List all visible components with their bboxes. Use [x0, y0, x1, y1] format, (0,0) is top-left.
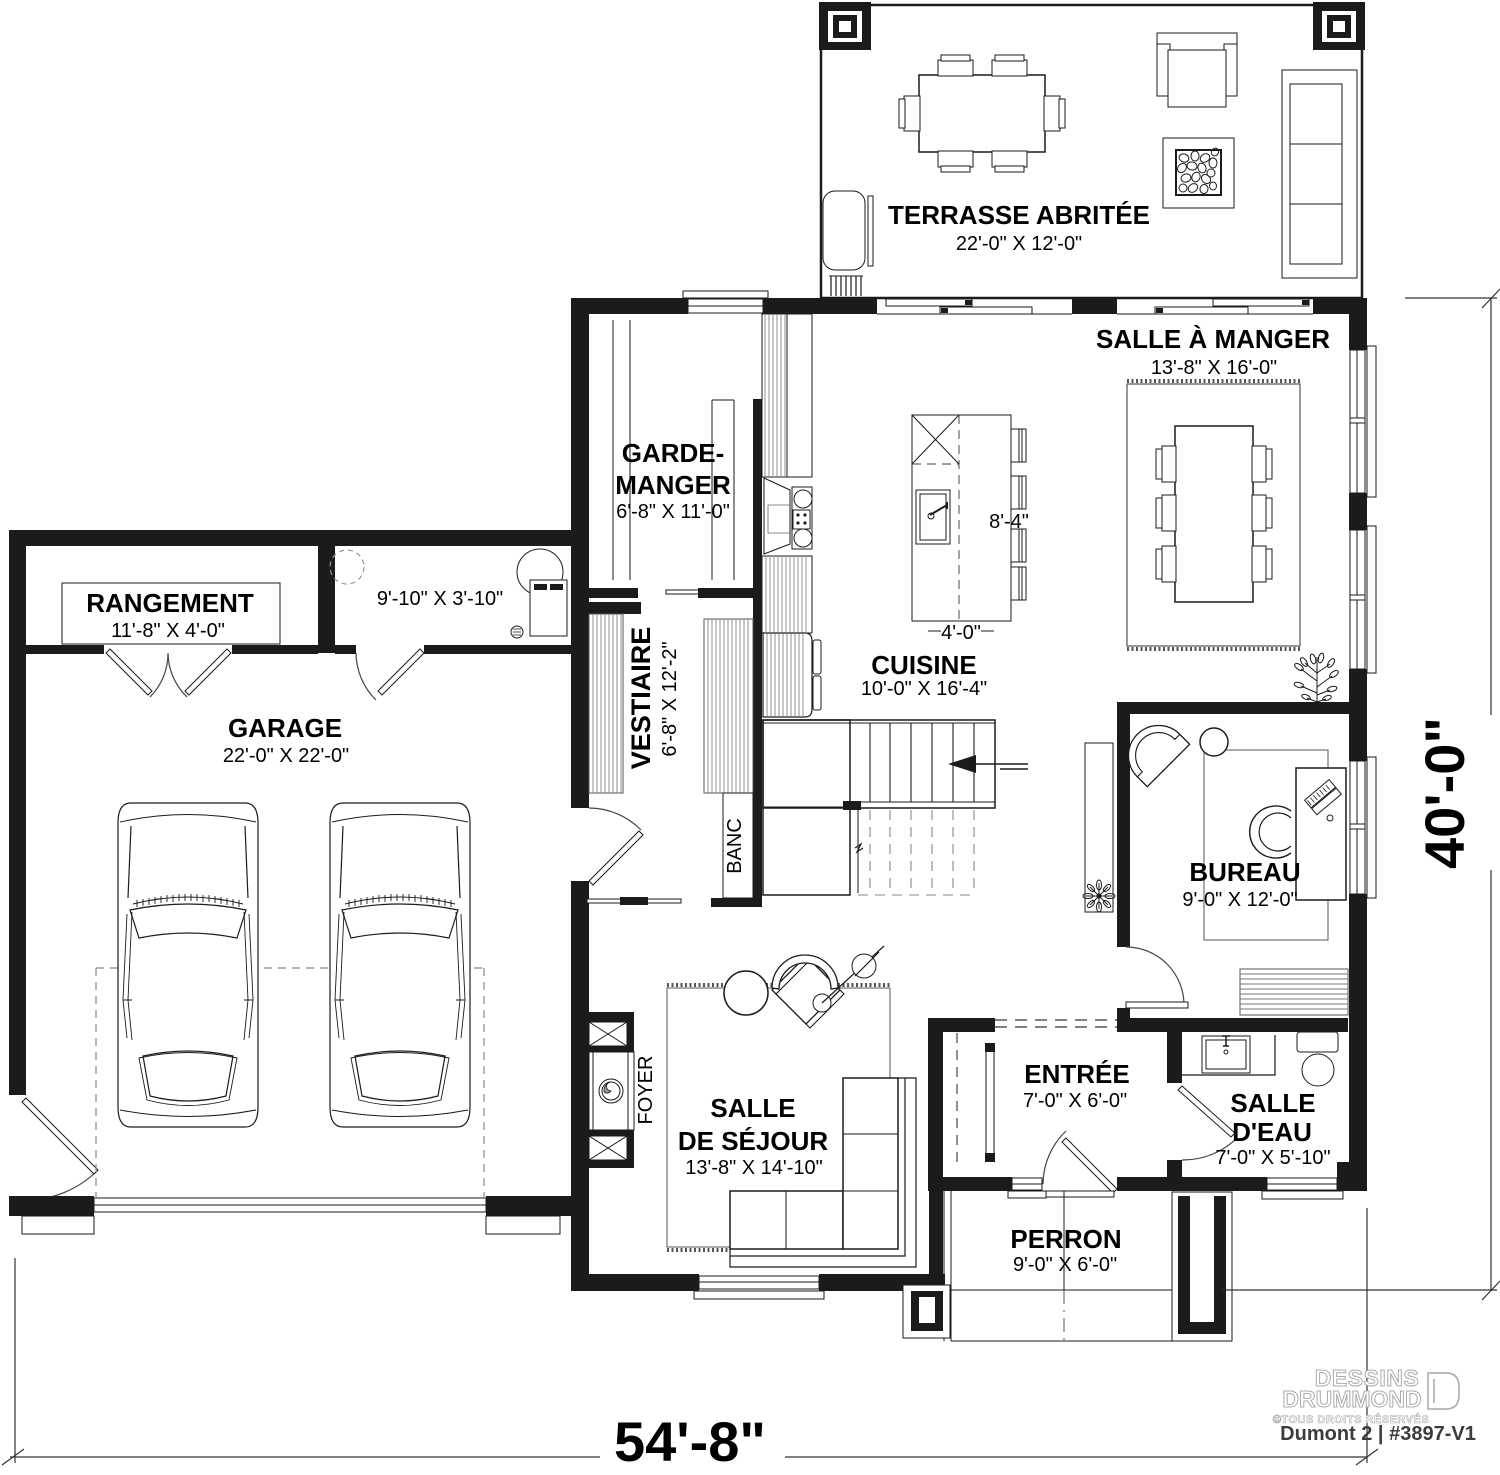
svg-text:MANGER: MANGER — [615, 470, 731, 500]
svg-text:54'-8": 54'-8" — [614, 1410, 766, 1473]
svg-text:8'-4": 8'-4" — [989, 511, 1029, 533]
svg-text:6'-8" X 12'-2": 6'-8" X 12'-2" — [659, 641, 681, 756]
svg-text:VESTIAIRE: VESTIAIRE — [626, 627, 656, 770]
svg-text:PERRON: PERRON — [1010, 1224, 1121, 1254]
svg-text:13'-8" X 16'-0": 13'-8" X 16'-0" — [1151, 357, 1277, 379]
svg-text:9'-0" X 12'-0": 9'-0" X 12'-0" — [1182, 889, 1297, 911]
svg-text:9'-10" X 3'-10": 9'-10" X 3'-10" — [377, 588, 503, 610]
svg-text:9'-0" X 6'-0": 9'-0" X 6'-0" — [1013, 1254, 1117, 1276]
svg-text:Dumont 2 | #3897-V1: Dumont 2 | #3897-V1 — [1280, 1423, 1476, 1445]
svg-text:22'-0" X 12'-0": 22'-0" X 12'-0" — [956, 233, 1082, 255]
svg-text:7'-0" X 6'-0": 7'-0" X 6'-0" — [1023, 1090, 1127, 1112]
svg-text:GARDE-: GARDE- — [622, 438, 725, 468]
svg-text:DRUMMOND: DRUMMOND — [1282, 1386, 1421, 1412]
svg-text:ENTRÉE: ENTRÉE — [1024, 1059, 1129, 1089]
svg-text:FOYER: FOYER — [635, 1056, 657, 1125]
svg-text:D'EAU: D'EAU — [1232, 1117, 1312, 1147]
svg-text:13'-8" X 14'-10": 13'-8" X 14'-10" — [685, 1157, 822, 1179]
svg-text:SALLE À MANGER: SALLE À MANGER — [1096, 324, 1330, 354]
svg-text:10'-0" X 16'-4": 10'-0" X 16'-4" — [861, 678, 987, 700]
svg-text:BANC: BANC — [724, 818, 746, 874]
svg-text:RANGEMENT: RANGEMENT — [86, 588, 254, 618]
svg-text:DE SÉJOUR: DE SÉJOUR — [678, 1126, 828, 1156]
svg-text:11'-8" X 4'-0": 11'-8" X 4'-0" — [111, 620, 225, 642]
svg-text:TERRASSE ABRITÉE: TERRASSE ABRITÉE — [888, 200, 1150, 230]
svg-text:40'-0": 40'-0" — [1413, 717, 1476, 869]
svg-text:6'-8" X 11'-0": 6'-8" X 11'-0" — [616, 501, 730, 523]
svg-text:7'-0" X 5'-10": 7'-0" X 5'-10" — [1215, 1147, 1330, 1169]
svg-text:CUISINE: CUISINE — [871, 650, 976, 680]
svg-text:GARAGE: GARAGE — [228, 713, 342, 743]
svg-text:4'-0": 4'-0" — [941, 622, 981, 644]
svg-text:SALLE: SALLE — [710, 1093, 795, 1123]
svg-text:BUREAU: BUREAU — [1189, 857, 1300, 887]
svg-text:SALLE: SALLE — [1230, 1088, 1315, 1118]
svg-text:22'-0" X 22'-0": 22'-0" X 22'-0" — [223, 745, 349, 767]
